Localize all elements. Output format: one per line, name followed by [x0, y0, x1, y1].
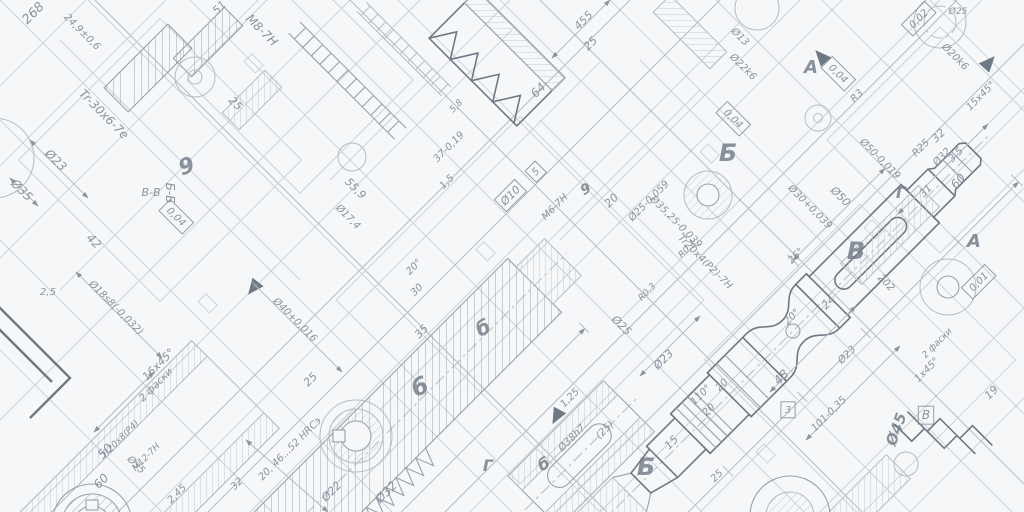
blueprint-canvas: 26824,9±0,651М8-7НTr-30x6-7e259Б-БØ23Ø35… [0, 0, 1024, 512]
ring-section-circle [684, 171, 732, 219]
hub-bore-circle [320, 400, 392, 472]
dimension-label: В [922, 408, 930, 422]
section-letter: Б [637, 453, 655, 481]
dimension-label: Ø25 [948, 6, 968, 17]
bore [697, 184, 719, 206]
keyway-notch [333, 430, 345, 442]
section-letter: Б [719, 139, 737, 167]
dimension-label: 2,5 [40, 287, 56, 298]
section-letter: А [802, 57, 818, 78]
keyway-notch [86, 500, 98, 510]
engineering-drawing-background: 26824,9±0,651М8-7НTr-30x6-7e259Б-БØ23Ø35… [0, 0, 1024, 512]
section-letter: Г [483, 456, 494, 475]
section-letter: Г [896, 183, 907, 202]
section-letter: В [847, 237, 865, 265]
dimension-label: 3 [785, 405, 791, 416]
dimension-label: В-В [141, 186, 160, 199]
section-letter: А [965, 231, 981, 252]
